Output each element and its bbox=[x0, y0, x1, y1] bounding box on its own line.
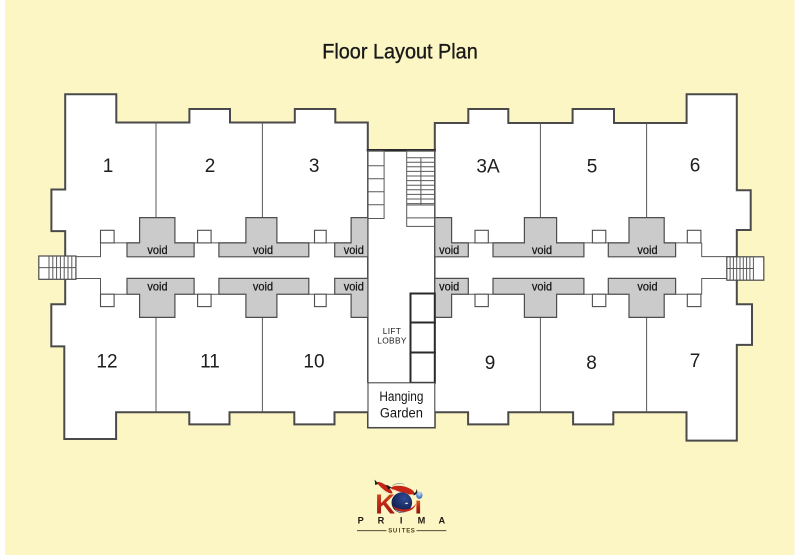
svg-text:void: void bbox=[147, 243, 167, 257]
svg-text:S: S bbox=[411, 529, 415, 535]
svg-text:2: 2 bbox=[205, 156, 216, 177]
svg-text:E: E bbox=[406, 529, 410, 535]
svg-text:6: 6 bbox=[690, 156, 701, 177]
svg-text:T: T bbox=[402, 529, 406, 535]
svg-text:void: void bbox=[344, 279, 364, 293]
svg-text:void: void bbox=[147, 279, 167, 293]
svg-text:R: R bbox=[378, 516, 385, 526]
svg-text:P: P bbox=[358, 516, 364, 526]
svg-text:void: void bbox=[532, 243, 552, 257]
svg-text:void: void bbox=[253, 279, 273, 293]
svg-text:LIFT: LIFT bbox=[383, 326, 401, 336]
svg-text:1: 1 bbox=[103, 156, 114, 177]
svg-text:9: 9 bbox=[485, 353, 496, 374]
svg-text:Hanging: Hanging bbox=[379, 389, 423, 404]
svg-text:7: 7 bbox=[690, 351, 701, 372]
svg-text:LOBBY: LOBBY bbox=[377, 336, 407, 346]
svg-text:M: M bbox=[418, 516, 426, 526]
svg-text:void: void bbox=[439, 279, 459, 293]
svg-text:10: 10 bbox=[303, 352, 324, 373]
svg-text:Garden: Garden bbox=[380, 406, 423, 421]
svg-text:3A: 3A bbox=[476, 157, 500, 178]
svg-text:3: 3 bbox=[309, 156, 320, 177]
svg-text:void: void bbox=[637, 243, 657, 257]
svg-text:11: 11 bbox=[200, 352, 220, 373]
svg-text:A: A bbox=[438, 516, 445, 526]
svg-text:void: void bbox=[253, 243, 273, 257]
svg-text:S: S bbox=[388, 529, 392, 535]
svg-text:U: U bbox=[393, 529, 397, 535]
svg-text:12: 12 bbox=[96, 352, 117, 373]
svg-text:I: I bbox=[400, 516, 403, 526]
svg-text:void: void bbox=[344, 243, 364, 257]
svg-text:8: 8 bbox=[586, 353, 597, 374]
svg-text:Floor Layout Plan: Floor Layout Plan bbox=[322, 40, 478, 64]
svg-text:void: void bbox=[439, 243, 459, 257]
svg-text:5: 5 bbox=[587, 157, 598, 178]
svg-text:void: void bbox=[637, 279, 657, 293]
svg-text:void: void bbox=[532, 279, 552, 293]
